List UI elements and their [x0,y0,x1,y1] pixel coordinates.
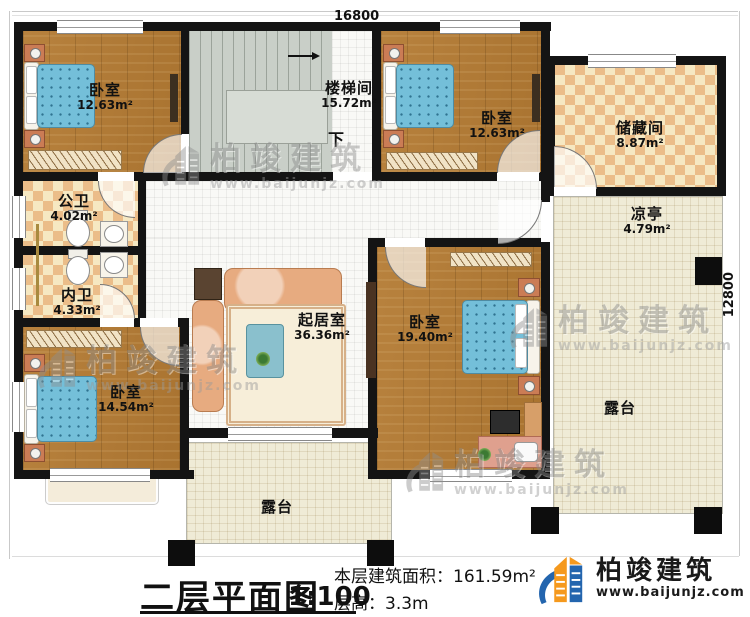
closet [450,252,532,267]
room-label-public-bath: 公卫 4.02m² [34,193,114,223]
sofa [192,300,224,412]
window [50,468,150,482]
floor-living-corridor [146,181,541,238]
nightstand [383,130,404,148]
company-website: www.baijunjz.com [596,585,745,601]
desk-plant [478,448,491,461]
pillow [385,66,396,94]
column [694,507,722,534]
room-label-storage: 储藏间 8.87m² [590,120,690,150]
floor-plan-canvas: 卧室 12.63m² 楼梯间 15.72m² 下 卧室 12.63m² 储藏间 … [0,0,750,617]
pillow [26,409,37,438]
room-label-bedroom-master: 卧室 19.40m² [375,314,475,344]
nightstand [383,44,404,62]
dimension-right: 12800 [722,272,737,317]
closet [386,152,478,170]
room-label-private-bath: 内卫 4.33m² [37,287,117,317]
desk-chair [514,442,538,462]
window-terrace-door [228,427,332,441]
bed [526,300,540,374]
room-label-terrace-bottom: 露台 [237,499,317,515]
column [367,540,394,566]
down-arrow-icon [312,52,320,60]
window [430,469,512,482]
company-logo-icon [534,552,588,606]
property-line [9,11,10,559]
room-label-terrace-right: 露台 [580,400,660,416]
door-opening [541,202,550,242]
stair-landing-platform [226,90,328,144]
building-area: 本层建筑面积：161.59m² [334,564,536,591]
dimension-top: 16800 [334,9,379,24]
floor-height: 层高：3.3m [334,591,536,617]
stair-down-label: 下 [328,126,344,150]
company-logo: 柏竣建筑 www.baijunjz.com [534,552,745,606]
sink-icon [100,252,128,278]
pillow [26,378,37,407]
title-underline [140,611,356,614]
pillow [385,96,396,124]
nightstand [518,376,540,395]
table-plant [256,352,270,366]
window [588,54,676,68]
tv-panel [170,74,178,122]
company-name: 柏竣建筑 [596,557,745,585]
door-opening [181,134,189,172]
pillow [26,66,37,94]
terrace-bottom-floor [186,442,392,544]
side-cabinet [194,268,222,300]
room-label-pavilion: 凉亭 4.79m² [597,206,697,236]
room-label-stairwell: 楼梯间 15.72m² [318,80,380,110]
stair-direction-line [288,55,312,57]
door-opening [98,172,134,181]
window [12,268,26,310]
towel-rail [36,224,39,266]
computer-monitor [490,410,520,434]
toilet-icon [66,256,90,285]
closet [26,330,122,348]
sink-icon [100,221,128,247]
wall-segment [181,172,333,181]
nightstand [518,278,540,297]
window [57,20,143,34]
room-label-bedroom-bottom-left: 卧室 14.54m² [76,384,176,414]
door-opening [140,318,178,327]
column [531,507,559,534]
pillow [515,338,527,368]
wall-segment [180,318,189,479]
closet [28,150,122,170]
nightstand [24,354,45,372]
property-line [739,11,740,556]
room-label-bedroom-top-left: 卧室 12.63m² [55,82,155,112]
pillow [515,304,527,334]
window [440,20,520,34]
room-label-living: 起居室 36.36m² [272,312,372,342]
desk-return [524,402,542,440]
door-opening [100,318,134,327]
room-label-bedroom-top-right: 卧室 12.63m² [447,110,547,140]
wall-segment [330,428,378,438]
nightstand [24,130,45,148]
column [695,257,722,285]
door-opening [497,172,539,181]
wall-segment [717,56,726,196]
nightstand [24,44,45,62]
pillow [26,96,37,124]
column [168,540,195,566]
bed-blanket [396,64,454,128]
nightstand [24,444,45,462]
terrace-right-floor [553,196,723,514]
window [12,196,26,238]
door-opening [385,238,425,247]
plan-meta: 本层建筑面积：161.59m² 层高：3.3m [334,564,536,617]
wall-segment [541,22,550,479]
